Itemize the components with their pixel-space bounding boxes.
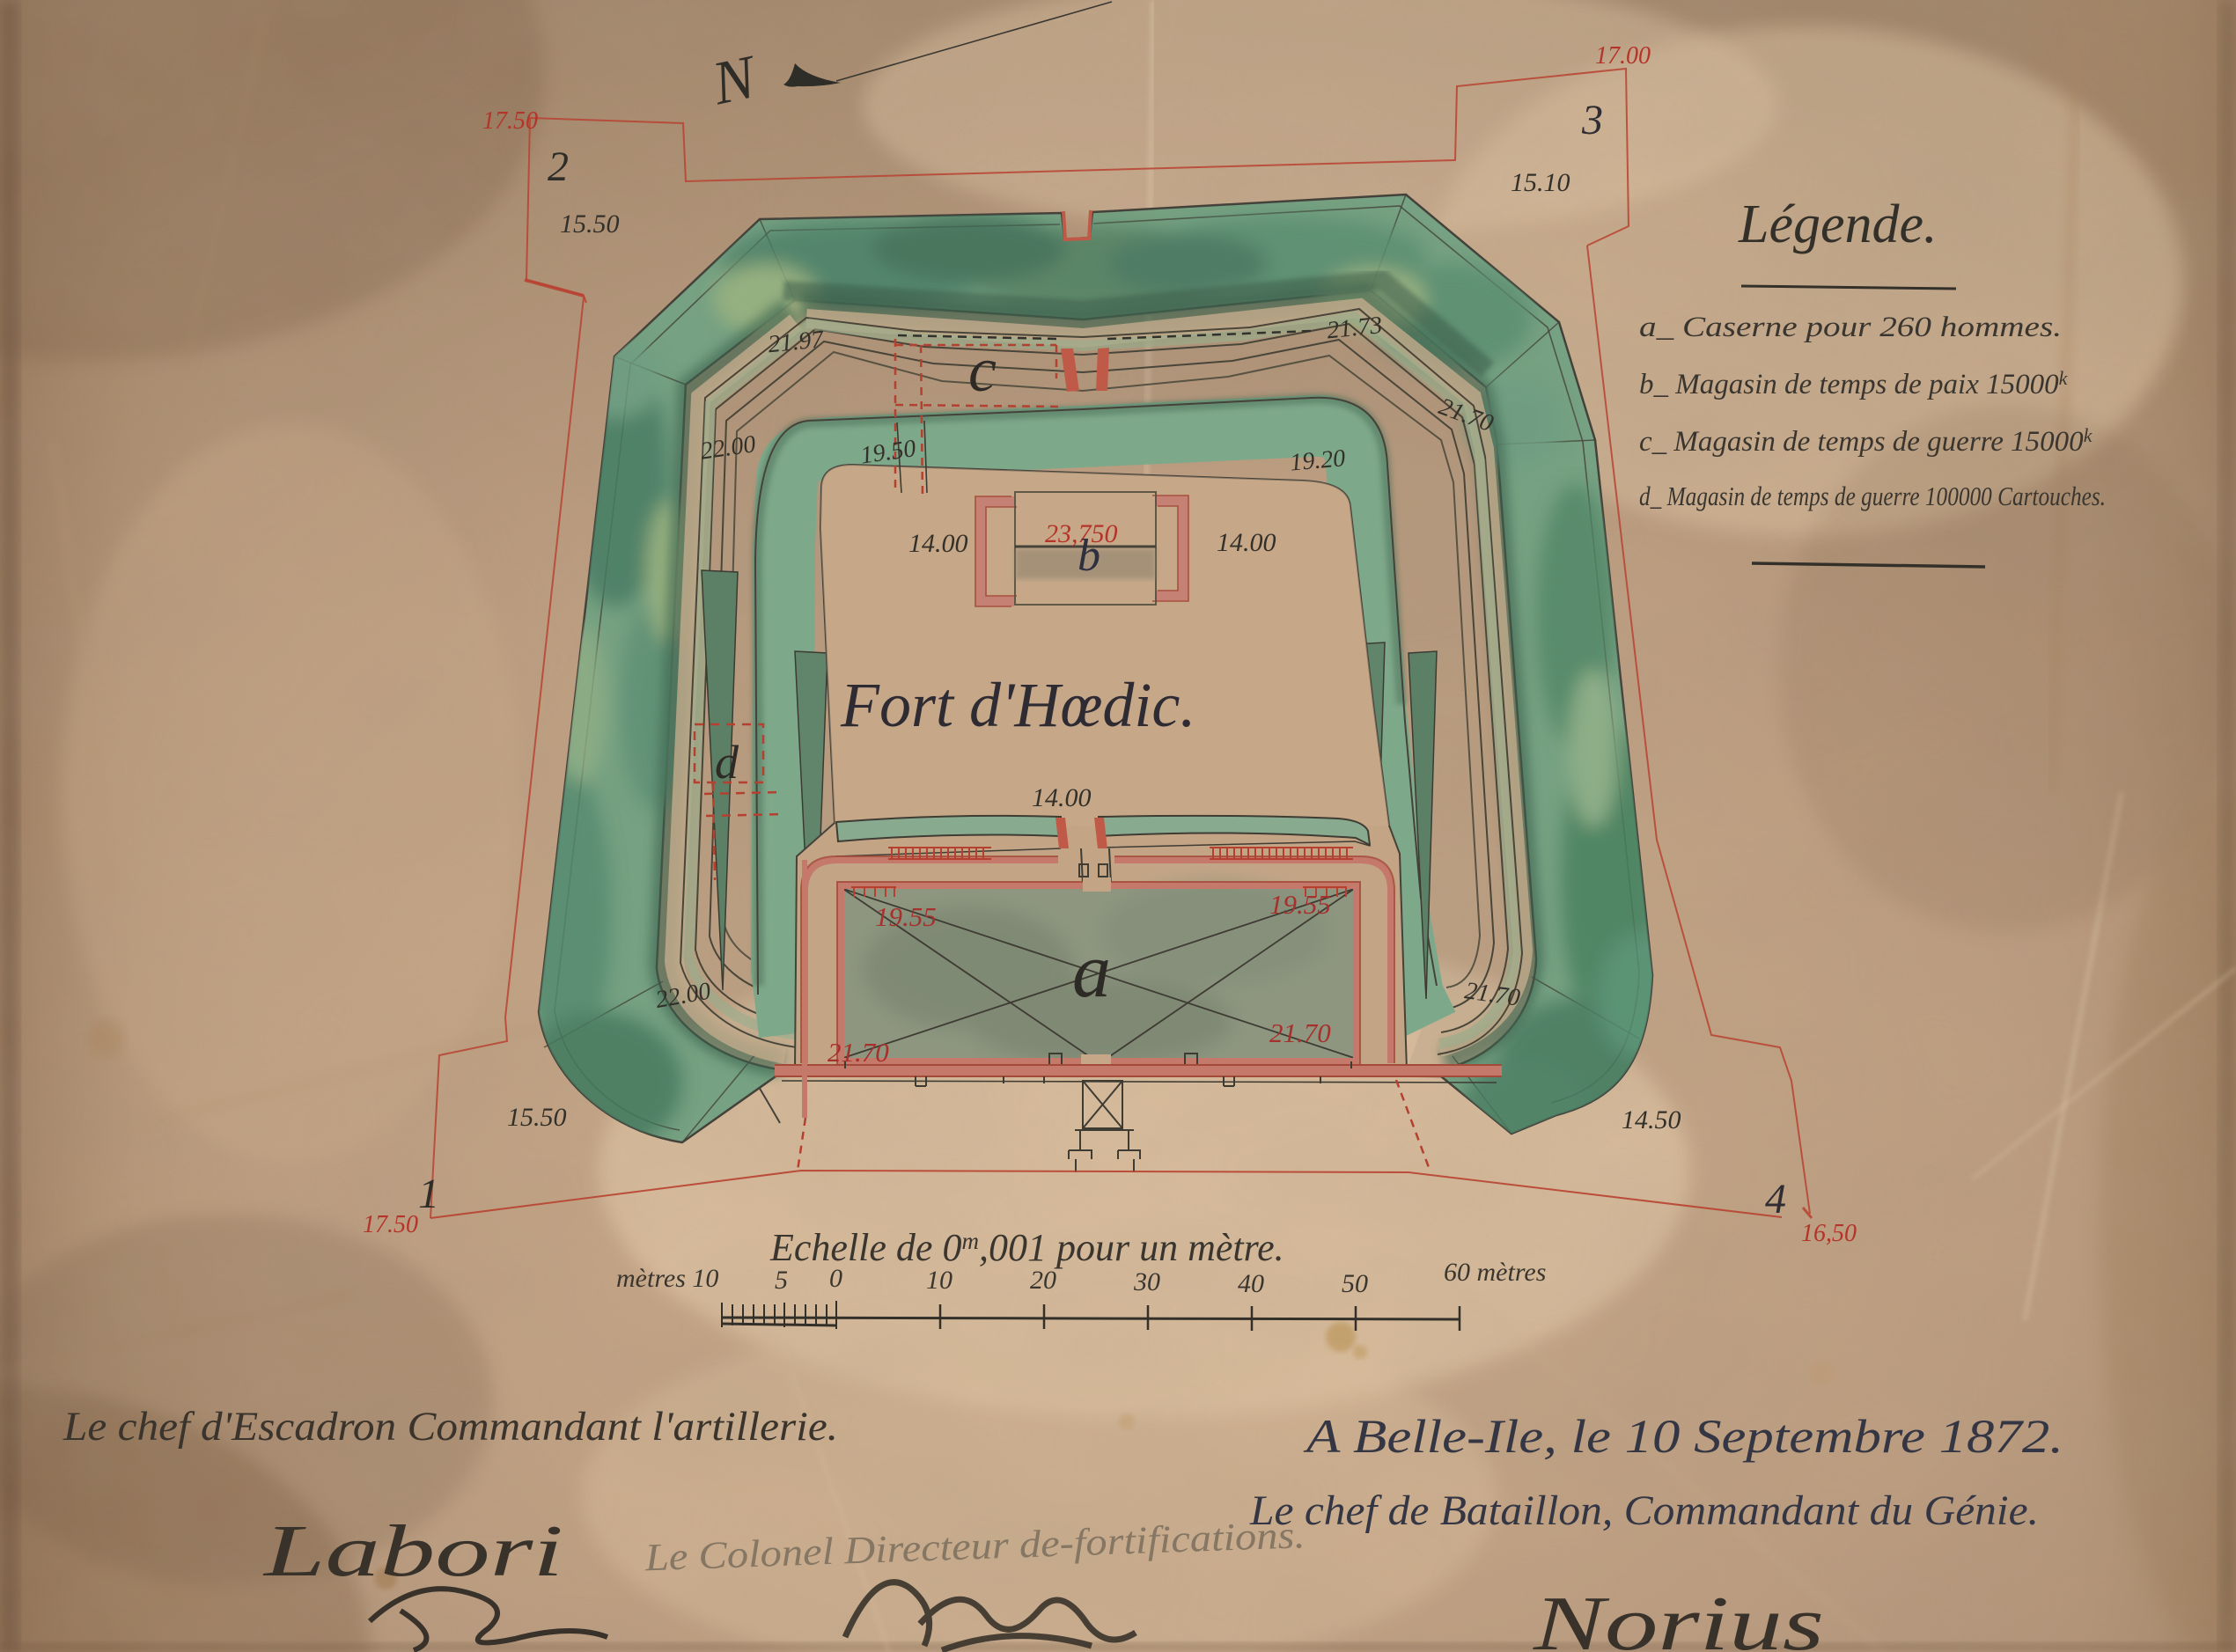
svg-text:5: 5 (775, 1266, 788, 1295)
svg-text:c: c (968, 334, 997, 405)
svg-text:21.73: 21.73 (1326, 312, 1384, 344)
svg-text:20: 20 (1030, 1266, 1056, 1295)
svg-text:19.20: 19.20 (1289, 444, 1346, 476)
svg-text:a: a (1072, 929, 1111, 1014)
svg-text:Norius: Norius (1533, 1582, 1824, 1652)
svg-text:2: 2 (548, 143, 569, 190)
svg-text:mètres 10: mètres 10 (616, 1264, 718, 1293)
svg-text:50: 50 (1342, 1269, 1368, 1298)
svg-text:4: 4 (1765, 1176, 1786, 1222)
svg-text:60 mètres: 60 mètres (1444, 1258, 1546, 1287)
svg-text:a_ Caserne pour 260 hommes.: a_ Caserne pour 260 hommes. (1639, 312, 2062, 343)
svg-text:10: 10 (926, 1266, 953, 1295)
svg-text:Labori: Labori (263, 1510, 563, 1592)
svg-text:14.50: 14.50 (1622, 1105, 1681, 1134)
svg-text:19.55: 19.55 (1269, 889, 1331, 920)
svg-text:15.50: 15.50 (560, 209, 620, 239)
svg-text:Le chef d'Escadron Commandant: Le chef d'Escadron Commandant l'artiller… (63, 1404, 838, 1450)
svg-text:15.10: 15.10 (1511, 168, 1570, 197)
svg-text:Fort d'Hœdic.: Fort d'Hœdic. (840, 670, 1195, 740)
svg-text:14.00: 14.00 (1032, 783, 1092, 812)
svg-text:0: 0 (829, 1264, 842, 1293)
svg-text:Légende.: Légende. (1738, 195, 1938, 254)
svg-text:17.50: 17.50 (363, 1211, 418, 1238)
svg-text:d: d (715, 736, 739, 789)
svg-text:21.70: 21.70 (1269, 1017, 1331, 1048)
svg-text:14.00: 14.00 (1217, 528, 1276, 557)
svg-text:17.00: 17.00 (1595, 42, 1651, 70)
svg-text:19.55: 19.55 (875, 901, 937, 932)
svg-text:21.70: 21.70 (827, 1037, 889, 1068)
svg-text:Le chef de Bataillon, Commanda: Le chef de Bataillon, Commandant du Géni… (1249, 1487, 2039, 1534)
svg-text:c_ Magasin de temps de guerre: c_ Magasin de temps de guerre 15000k (1639, 424, 2093, 458)
svg-text:1: 1 (418, 1171, 439, 1217)
svg-text:d_ Magasin de temps de guerre: d_ Magasin de temps de guerre 100000 Car… (1639, 481, 2106, 511)
svg-text:16,50: 16,50 (1801, 1220, 1857, 1247)
svg-text:15.50: 15.50 (507, 1103, 567, 1132)
svg-text:30: 30 (1133, 1267, 1160, 1296)
svg-text:A Belle-Ile, le 10 Septembre 1: A Belle-Ile, le 10 Septembre 1872. (1304, 1410, 2063, 1463)
svg-text:b: b (1078, 531, 1100, 581)
svg-text:b_ Magasin de temps de paix 15: b_ Magasin de temps de paix 15000k (1639, 367, 2069, 400)
svg-text:14.00: 14.00 (908, 529, 968, 558)
svg-text:3: 3 (1581, 97, 1603, 143)
svg-text:40: 40 (1238, 1269, 1264, 1298)
svg-text:Echelle de 0m,001 pour un mètr: Echelle de 0m,001 pour un mètre. (769, 1226, 1284, 1269)
svg-text:17.50: 17.50 (482, 107, 538, 135)
